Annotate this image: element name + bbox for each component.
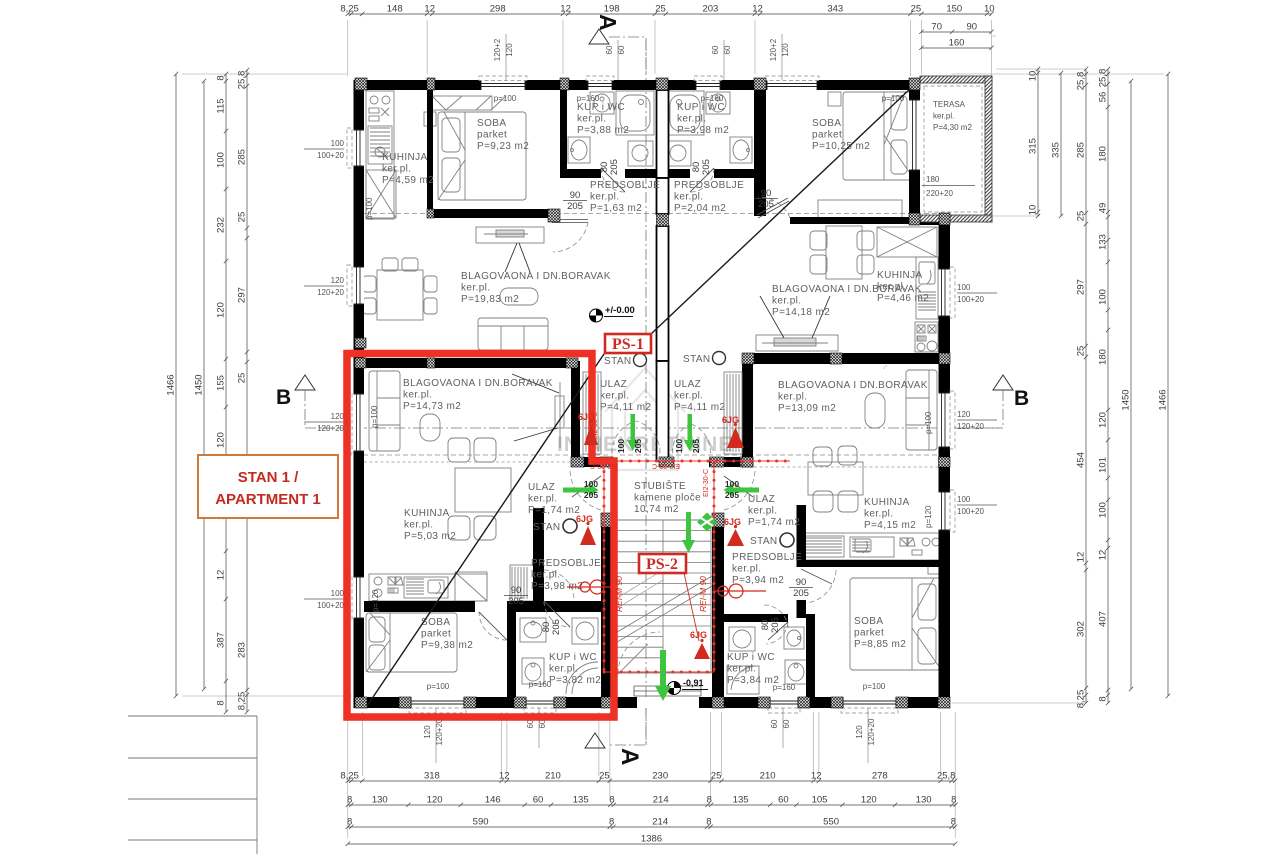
svg-text:198: 198 xyxy=(604,4,620,15)
svg-text:100+20: 100+20 xyxy=(957,295,984,304)
svg-text:8: 8 xyxy=(216,75,227,80)
svg-text:120+20: 120+20 xyxy=(957,422,984,431)
svg-text:p=100: p=100 xyxy=(365,197,374,220)
svg-text:6JG: 6JG xyxy=(578,412,595,422)
svg-text:+/-0.00: +/-0.00 xyxy=(605,305,635,316)
svg-text:205: 205 xyxy=(758,199,774,210)
svg-text:60: 60 xyxy=(605,45,614,54)
svg-text:REI-M 90: REI-M 90 xyxy=(698,576,708,612)
svg-text:EI2-30-C: EI2-30-C xyxy=(652,462,680,469)
svg-text:p=120: p=120 xyxy=(371,589,380,612)
svg-text:25,8: 25,8 xyxy=(1098,69,1109,88)
svg-text:p=160: p=160 xyxy=(577,94,600,103)
svg-text:1450: 1450 xyxy=(194,374,205,395)
svg-text:100+20: 100+20 xyxy=(957,507,984,516)
svg-text:100: 100 xyxy=(1098,502,1109,518)
svg-text:135: 135 xyxy=(573,795,589,806)
svg-text:APARTMENT 1: APARTMENT 1 xyxy=(215,491,321,508)
svg-text:205: 205 xyxy=(551,619,562,635)
svg-text:49: 49 xyxy=(1098,203,1109,214)
svg-text:60: 60 xyxy=(711,45,720,54)
svg-text:285: 285 xyxy=(1076,142,1087,158)
svg-text:p=160: p=160 xyxy=(773,683,796,692)
svg-text:210: 210 xyxy=(760,771,776,782)
svg-text:120: 120 xyxy=(216,432,227,448)
svg-text:210: 210 xyxy=(545,771,561,782)
svg-text:-0,91: -0,91 xyxy=(683,678,704,688)
svg-text:IN NEKRETNINE: IN NEKRETNINE xyxy=(557,433,733,456)
svg-text:60: 60 xyxy=(617,45,626,54)
svg-text:180: 180 xyxy=(1098,349,1109,365)
svg-text:120+20: 120+20 xyxy=(317,288,344,297)
svg-text:120: 120 xyxy=(216,302,227,318)
svg-text:EI2-30-C: EI2-30-C xyxy=(703,469,710,497)
svg-text:STAN: STAN xyxy=(533,522,561,533)
svg-text:100: 100 xyxy=(957,283,971,292)
svg-text:90: 90 xyxy=(967,22,978,33)
svg-text:278: 278 xyxy=(872,771,888,782)
svg-text:6JG: 6JG xyxy=(576,514,593,524)
svg-text:180: 180 xyxy=(926,175,940,184)
svg-text:70: 70 xyxy=(931,22,942,33)
svg-text:EI2-30-C: EI2-30-C xyxy=(590,462,618,469)
svg-text:230: 230 xyxy=(652,771,668,782)
svg-text:8,25: 8,25 xyxy=(1076,690,1087,709)
svg-text:297: 297 xyxy=(237,287,248,303)
svg-text:8: 8 xyxy=(609,817,614,828)
svg-text:12: 12 xyxy=(499,771,510,782)
svg-text:100: 100 xyxy=(957,495,971,504)
svg-text:120+2: 120+2 xyxy=(769,38,778,61)
svg-text:318: 318 xyxy=(424,771,440,782)
svg-text:8: 8 xyxy=(347,817,352,828)
svg-text:25: 25 xyxy=(237,373,248,384)
svg-text:101: 101 xyxy=(1098,457,1109,473)
svg-text:100: 100 xyxy=(216,152,227,168)
svg-text:120: 120 xyxy=(855,725,864,739)
svg-text:232: 232 xyxy=(216,217,227,233)
svg-text:25: 25 xyxy=(1076,346,1087,357)
svg-text:454: 454 xyxy=(1076,452,1087,468)
svg-text:8: 8 xyxy=(951,817,956,828)
svg-text:297: 297 xyxy=(1076,279,1087,295)
svg-text:120: 120 xyxy=(423,725,432,739)
svg-text:6JG: 6JG xyxy=(690,630,707,640)
svg-text:1466: 1466 xyxy=(1158,389,1169,410)
svg-text:8: 8 xyxy=(609,795,614,806)
svg-text:590: 590 xyxy=(473,817,489,828)
svg-text:120: 120 xyxy=(331,276,345,285)
svg-text:407: 407 xyxy=(1098,611,1109,627)
svg-text:135: 135 xyxy=(733,795,749,806)
svg-text:100: 100 xyxy=(616,439,626,453)
svg-text:205: 205 xyxy=(691,439,701,453)
svg-text:130: 130 xyxy=(916,795,932,806)
svg-text:10: 10 xyxy=(1028,205,1039,216)
svg-text:25,8: 25,8 xyxy=(937,771,956,782)
svg-text:180: 180 xyxy=(1098,146,1109,162)
svg-text:90: 90 xyxy=(511,585,522,596)
svg-text:220+20: 220+20 xyxy=(926,189,953,198)
svg-text:A: A xyxy=(595,14,621,31)
svg-text:p=160: p=160 xyxy=(701,94,724,103)
svg-text:12: 12 xyxy=(1098,550,1109,561)
svg-text:p=100: p=100 xyxy=(924,411,933,434)
svg-text:STAN 1 /: STAN 1 / xyxy=(238,469,299,486)
svg-text:B: B xyxy=(276,386,291,409)
svg-text:p=160: p=160 xyxy=(529,680,552,689)
svg-text:205: 205 xyxy=(508,596,524,607)
svg-text:8: 8 xyxy=(706,817,711,828)
svg-text:133: 133 xyxy=(1098,234,1109,250)
svg-text:STAN: STAN xyxy=(683,354,711,365)
svg-text:60: 60 xyxy=(723,45,732,54)
svg-text:25: 25 xyxy=(655,4,666,15)
svg-text:8,25: 8,25 xyxy=(340,771,359,782)
svg-text:120: 120 xyxy=(781,43,790,57)
svg-text:120: 120 xyxy=(427,795,443,806)
svg-text:205: 205 xyxy=(633,439,643,453)
svg-text:214: 214 xyxy=(652,817,668,828)
svg-text:387: 387 xyxy=(216,632,227,648)
svg-text:100: 100 xyxy=(584,479,598,489)
svg-text:120: 120 xyxy=(861,795,877,806)
svg-text:REI-M 90: REI-M 90 xyxy=(614,576,624,612)
svg-text:12: 12 xyxy=(1076,552,1087,563)
svg-text:1466: 1466 xyxy=(166,374,177,395)
svg-text:p=100: p=100 xyxy=(427,682,450,691)
svg-text:PS-2: PS-2 xyxy=(646,556,678,573)
svg-text:302: 302 xyxy=(1076,621,1087,637)
svg-text:56: 56 xyxy=(1098,92,1109,103)
svg-text:STAN: STAN xyxy=(604,356,632,367)
svg-text:90: 90 xyxy=(761,188,772,199)
svg-text:120+20: 120+20 xyxy=(317,424,344,433)
svg-text:100: 100 xyxy=(331,589,345,598)
svg-text:100: 100 xyxy=(674,439,684,453)
svg-text:343: 343 xyxy=(827,4,843,15)
svg-text:205: 205 xyxy=(793,588,809,599)
svg-text:12: 12 xyxy=(424,4,435,15)
svg-text:285: 285 xyxy=(237,149,248,165)
svg-text:25: 25 xyxy=(1076,211,1087,222)
svg-text:315: 315 xyxy=(1028,138,1039,154)
svg-text:12: 12 xyxy=(560,4,571,15)
svg-text:100+20: 100+20 xyxy=(317,601,344,610)
svg-text:550: 550 xyxy=(823,817,839,828)
svg-text:115: 115 xyxy=(216,98,227,113)
svg-text:100: 100 xyxy=(725,479,739,489)
svg-text:146: 146 xyxy=(485,795,501,806)
svg-text:105: 105 xyxy=(812,795,828,806)
svg-text:12: 12 xyxy=(811,771,822,782)
svg-text:6JG: 6JG xyxy=(724,517,741,527)
svg-text:130: 130 xyxy=(372,795,388,806)
svg-text:120+2: 120+2 xyxy=(493,38,502,61)
svg-text:8,25: 8,25 xyxy=(340,4,359,15)
svg-text:8: 8 xyxy=(707,795,712,806)
svg-text:B: B xyxy=(1014,387,1029,410)
svg-text:120: 120 xyxy=(331,412,345,421)
svg-text:p=120: p=120 xyxy=(924,505,933,528)
svg-text:298: 298 xyxy=(490,4,506,15)
svg-text:25: 25 xyxy=(711,771,722,782)
svg-text:A: A xyxy=(616,748,643,765)
svg-text:203: 203 xyxy=(702,4,718,15)
svg-text:160: 160 xyxy=(949,38,965,49)
svg-text:8,25: 8,25 xyxy=(237,692,248,711)
svg-text:155: 155 xyxy=(216,375,227,391)
svg-text:120+20: 120+20 xyxy=(867,718,876,745)
svg-text:8: 8 xyxy=(1098,696,1109,701)
svg-text:60: 60 xyxy=(782,719,791,728)
svg-text:60: 60 xyxy=(778,795,789,806)
svg-text:1386: 1386 xyxy=(641,834,662,845)
svg-text:90: 90 xyxy=(570,190,581,201)
svg-text:25: 25 xyxy=(599,771,610,782)
svg-text:1450: 1450 xyxy=(1121,389,1132,410)
svg-text:150: 150 xyxy=(946,4,962,15)
svg-text:p=100: p=100 xyxy=(370,405,379,428)
svg-text:8: 8 xyxy=(347,795,352,806)
svg-text:90: 90 xyxy=(796,577,807,588)
svg-text:8: 8 xyxy=(216,700,227,705)
svg-text:8: 8 xyxy=(951,795,956,806)
svg-text:p=100: p=100 xyxy=(882,94,905,103)
svg-text:PS-1: PS-1 xyxy=(612,336,644,353)
svg-text:12: 12 xyxy=(752,4,763,15)
svg-text:120: 120 xyxy=(957,410,971,419)
svg-text:6JG: 6JG xyxy=(722,415,739,425)
svg-text:p=100: p=100 xyxy=(863,682,886,691)
svg-text:12: 12 xyxy=(216,570,227,581)
svg-text:205: 205 xyxy=(609,159,620,175)
svg-text:120+20: 120+20 xyxy=(435,718,444,745)
svg-text:148: 148 xyxy=(387,4,403,15)
svg-text:60: 60 xyxy=(533,795,544,806)
svg-text:205: 205 xyxy=(584,490,598,500)
svg-text:283: 283 xyxy=(237,642,248,658)
svg-text:205: 205 xyxy=(725,490,739,500)
svg-text:10: 10 xyxy=(1028,71,1039,82)
svg-text:25,8: 25,8 xyxy=(1076,72,1087,91)
svg-text:214: 214 xyxy=(653,795,669,806)
svg-text:335: 335 xyxy=(1051,142,1062,158)
svg-text:60: 60 xyxy=(770,719,779,728)
svg-text:STAN: STAN xyxy=(750,536,778,547)
svg-text:25,8: 25,8 xyxy=(237,71,248,90)
svg-text:100: 100 xyxy=(1098,289,1109,305)
svg-text:205: 205 xyxy=(701,159,712,175)
svg-text:100+20: 100+20 xyxy=(317,151,344,160)
svg-text:205: 205 xyxy=(770,617,781,633)
svg-text:25: 25 xyxy=(237,212,248,223)
svg-text:120: 120 xyxy=(1098,412,1109,428)
svg-text:205: 205 xyxy=(567,201,583,212)
svg-text:p=100: p=100 xyxy=(494,94,517,103)
svg-text:25: 25 xyxy=(911,4,922,15)
svg-text:10: 10 xyxy=(984,4,995,15)
svg-text:100: 100 xyxy=(331,139,345,148)
svg-text:120: 120 xyxy=(505,43,514,57)
